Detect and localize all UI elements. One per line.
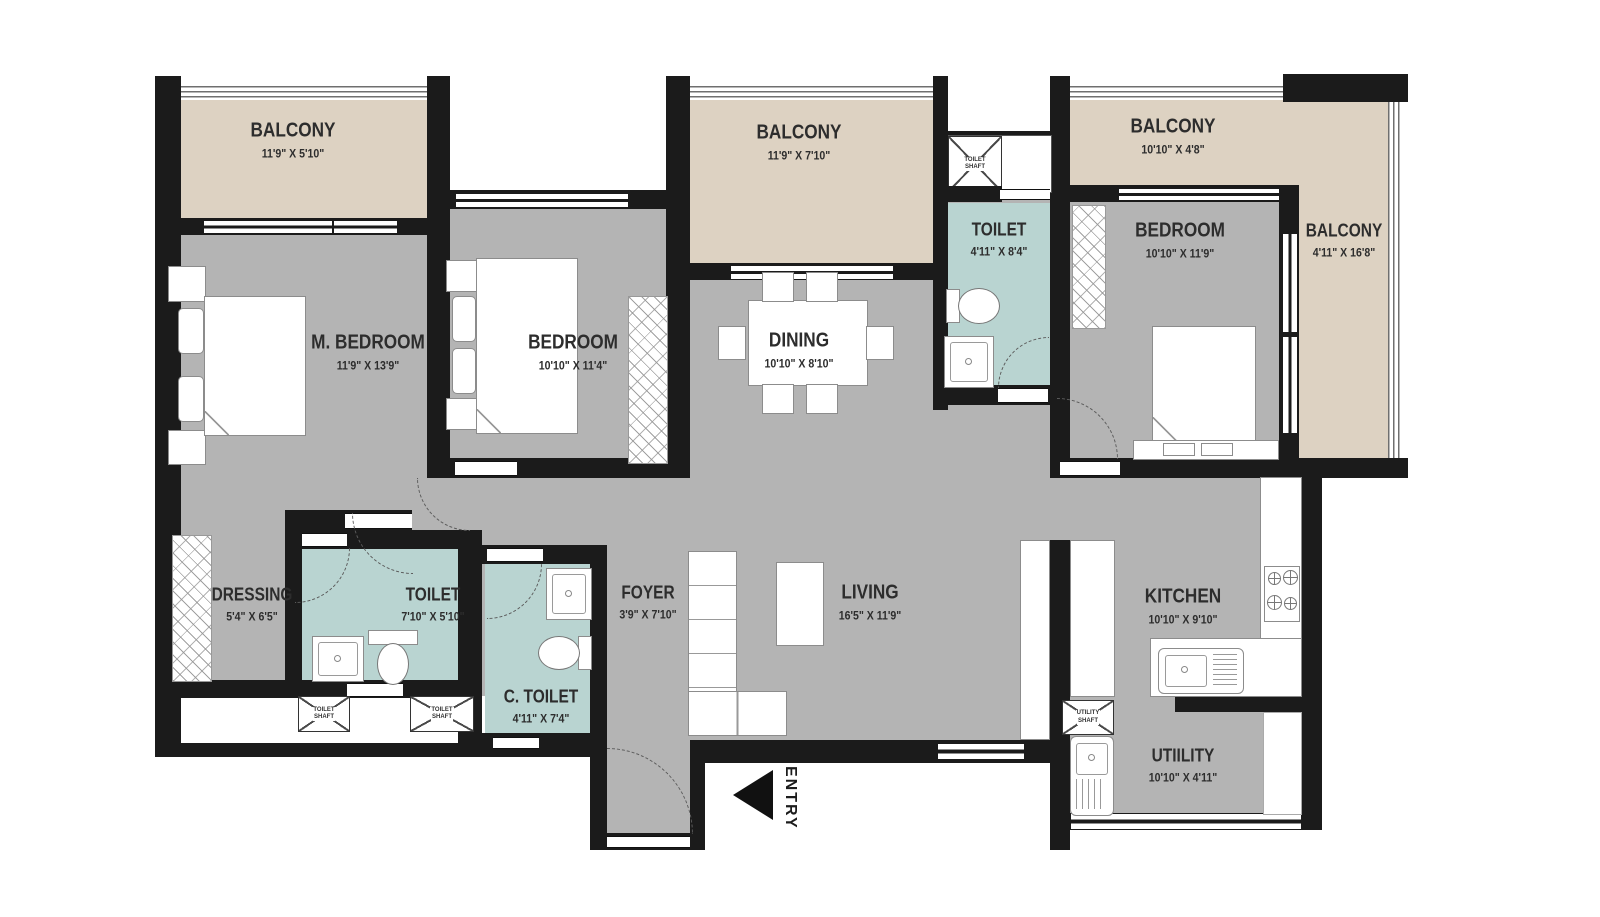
stove-burner (1268, 572, 1281, 585)
c-toilet-wc-tank (578, 636, 592, 670)
room-label-utility: UTIILITY 10'10" X 4'11" (1144, 747, 1222, 784)
wall-top-right-corner (1283, 74, 1408, 102)
room-label-bedroom-3: BEDROOM 10'10" X 11'9" (1128, 221, 1232, 260)
wall-shaft-toilet-divider (945, 186, 1002, 202)
toilet-top-wc-bowl (958, 288, 1000, 324)
entry-arrow-icon (733, 770, 773, 820)
door-sill-bedroom2 (455, 461, 517, 476)
bed-sheet-fold (1153, 417, 1177, 441)
window-balcony1-a (203, 220, 333, 234)
room-label-balcony-top-middle: BALCONY 11'9" X 7'10" (750, 123, 849, 162)
room-label-dressing: DRESSING 5'4" X 6'5" (205, 586, 299, 623)
bed-sheet-fold (477, 409, 501, 433)
room-label-toilet-top: TOILET 4'11" X 8'4" (967, 221, 1031, 258)
washbasin-drain (565, 590, 572, 597)
wall-kitchen-utility (1175, 695, 1300, 712)
bedroom3-bed (1152, 326, 1256, 442)
stove-burner (1267, 595, 1282, 610)
foyer-cabinet (688, 691, 787, 736)
bed-sheet-fold (205, 411, 229, 435)
utility-sink-drain (1088, 754, 1095, 761)
room-label-m-bedroom: M. BEDROOM 11'9" X 13'9" (302, 333, 434, 372)
toilet-shaft-top-label-2: SHAFT (964, 164, 986, 171)
foyer-shelf-unit (688, 551, 737, 693)
c-toilet-wc-bowl (538, 636, 580, 670)
utility-shaft: UTILITY SHAFT (1062, 700, 1114, 735)
bedroom2-pillow-1 (452, 296, 476, 342)
toilet-shaft-label-1: TOILET (312, 707, 335, 714)
mbedroom-bed (204, 296, 306, 436)
dining-chair-5 (718, 326, 746, 360)
dining-chair-4 (806, 384, 838, 414)
door-sill-bedroom3 (1060, 461, 1120, 476)
room-label-balcony-right: BALCONY 4'11" X 16'8" (1300, 222, 1389, 259)
toilet-top-washbasin (944, 336, 994, 388)
c-toilet-washbasin (546, 568, 592, 620)
bedroom3-dresser-drawer-2 (1201, 443, 1233, 456)
toilet-shaft-label-2: SHAFT (431, 714, 453, 721)
wall-kitchen-right (1300, 462, 1322, 830)
bedroom2-nightstand-bottom (446, 398, 478, 430)
balcony-top-left-railing (181, 86, 427, 101)
vent-sill-c-toilet (493, 737, 539, 749)
window-bedroom3-b (1282, 336, 1298, 434)
toilet-shaft-left: TOILET SHAFT (298, 696, 350, 732)
room-label-toilet-bottom: TOILET 7'10" X 5'10" (397, 586, 469, 623)
room-label-balcony-top-left: BALCONY 11'9" X 5'10" (244, 121, 343, 160)
kitchen-sink-drainboard (1213, 654, 1237, 687)
kitchen-sink (1158, 648, 1244, 694)
dining-chair-3 (762, 384, 794, 414)
toilet-bottom-wc-bowl (377, 643, 409, 685)
room-label-foyer: FOYER 3'9" X 7'10" (615, 584, 680, 621)
toilet-shaft-label-1: TOILET (430, 707, 453, 714)
washbasin-drain (334, 655, 341, 662)
wall-kitchen-left (1050, 540, 1070, 850)
toilet-shaft-top-label-1: TOILET (963, 157, 986, 164)
utility-counter-right (1263, 712, 1302, 815)
balcony-top-right-railing (1068, 86, 1283, 101)
utility-shaft-label-1: UTILITY (1076, 710, 1101, 717)
wall-foyer-left (590, 545, 607, 850)
mbedroom-nightstand-bottom (168, 430, 206, 465)
door-sill-toilet-bottom (295, 533, 347, 547)
door-sill-toilet-top (998, 388, 1048, 403)
room-label-dining: DINING 10'10" X 8'10" (760, 331, 838, 370)
kitchen-stove (1264, 566, 1300, 622)
entry-door-sill (607, 836, 690, 848)
toilet-bottom-washbasin (312, 636, 364, 682)
washbasin-drain (965, 358, 972, 365)
living-side-cabinet (1020, 540, 1050, 740)
mbedroom-pillow-1 (178, 308, 204, 354)
mbedroom-nightstand-top (168, 266, 206, 302)
bedroom2-nightstand-top (446, 260, 478, 292)
toilet-shaft-right: TOILET SHAFT (410, 696, 474, 732)
window-living-bottom (937, 743, 1025, 760)
kitchen-counter-left (1070, 540, 1115, 697)
bedroom3-dresser-drawer-1 (1163, 443, 1195, 456)
balcony-right-railing (1388, 100, 1402, 460)
room-label-living: LIVING 16'5" X 11'9" (834, 583, 905, 622)
balcony-top-middle-railing (690, 86, 933, 101)
room-label-c-toilet: C. TOILET 4'11" X 7'4" (498, 688, 585, 725)
window-balcony3 (1118, 188, 1280, 201)
dining-chair-6 (866, 326, 894, 360)
window-bedroom3-a (1282, 233, 1298, 333)
dining-chair-2 (806, 272, 838, 302)
utility-sink (1070, 736, 1114, 816)
bedroom2-wardrobe (628, 296, 668, 464)
entry-label: ENTRY (782, 766, 798, 830)
bedroom3-wardrobe (1072, 205, 1106, 329)
dining-chair-1 (762, 272, 794, 302)
utility-shaft-label-2: SHAFT (1077, 718, 1099, 725)
kitchen-sink-drain (1181, 666, 1188, 673)
stove-burner (1283, 570, 1298, 585)
floor-plan: TOILET SHAFT (0, 0, 1600, 917)
toilet-shaft-label-2: SHAFT (313, 714, 335, 721)
window-balcony1-b (333, 220, 398, 234)
toilet-shaft-top: TOILET SHAFT (948, 136, 1002, 192)
room-label-balcony-top-right: BALCONY 10'10" X 4'8" (1124, 117, 1223, 156)
bedroom2-pillow-2 (452, 348, 476, 394)
sill-shaft-toilet (1000, 189, 1050, 200)
window-bedroom2-top (455, 193, 629, 208)
room-label-kitchen: KITCHEN 10'10" X 9'10" (1139, 587, 1228, 626)
stove-burner (1284, 597, 1297, 610)
utility-sink-grill (1076, 779, 1106, 809)
vent-sill-toilet-bottom (347, 683, 403, 697)
door-sill-c-toilet (487, 548, 543, 562)
room-label-bedroom-2: BEDROOM 10'10" X 11'4" (521, 333, 625, 372)
mbedroom-pillow-2 (178, 376, 204, 422)
living-table (776, 562, 824, 646)
